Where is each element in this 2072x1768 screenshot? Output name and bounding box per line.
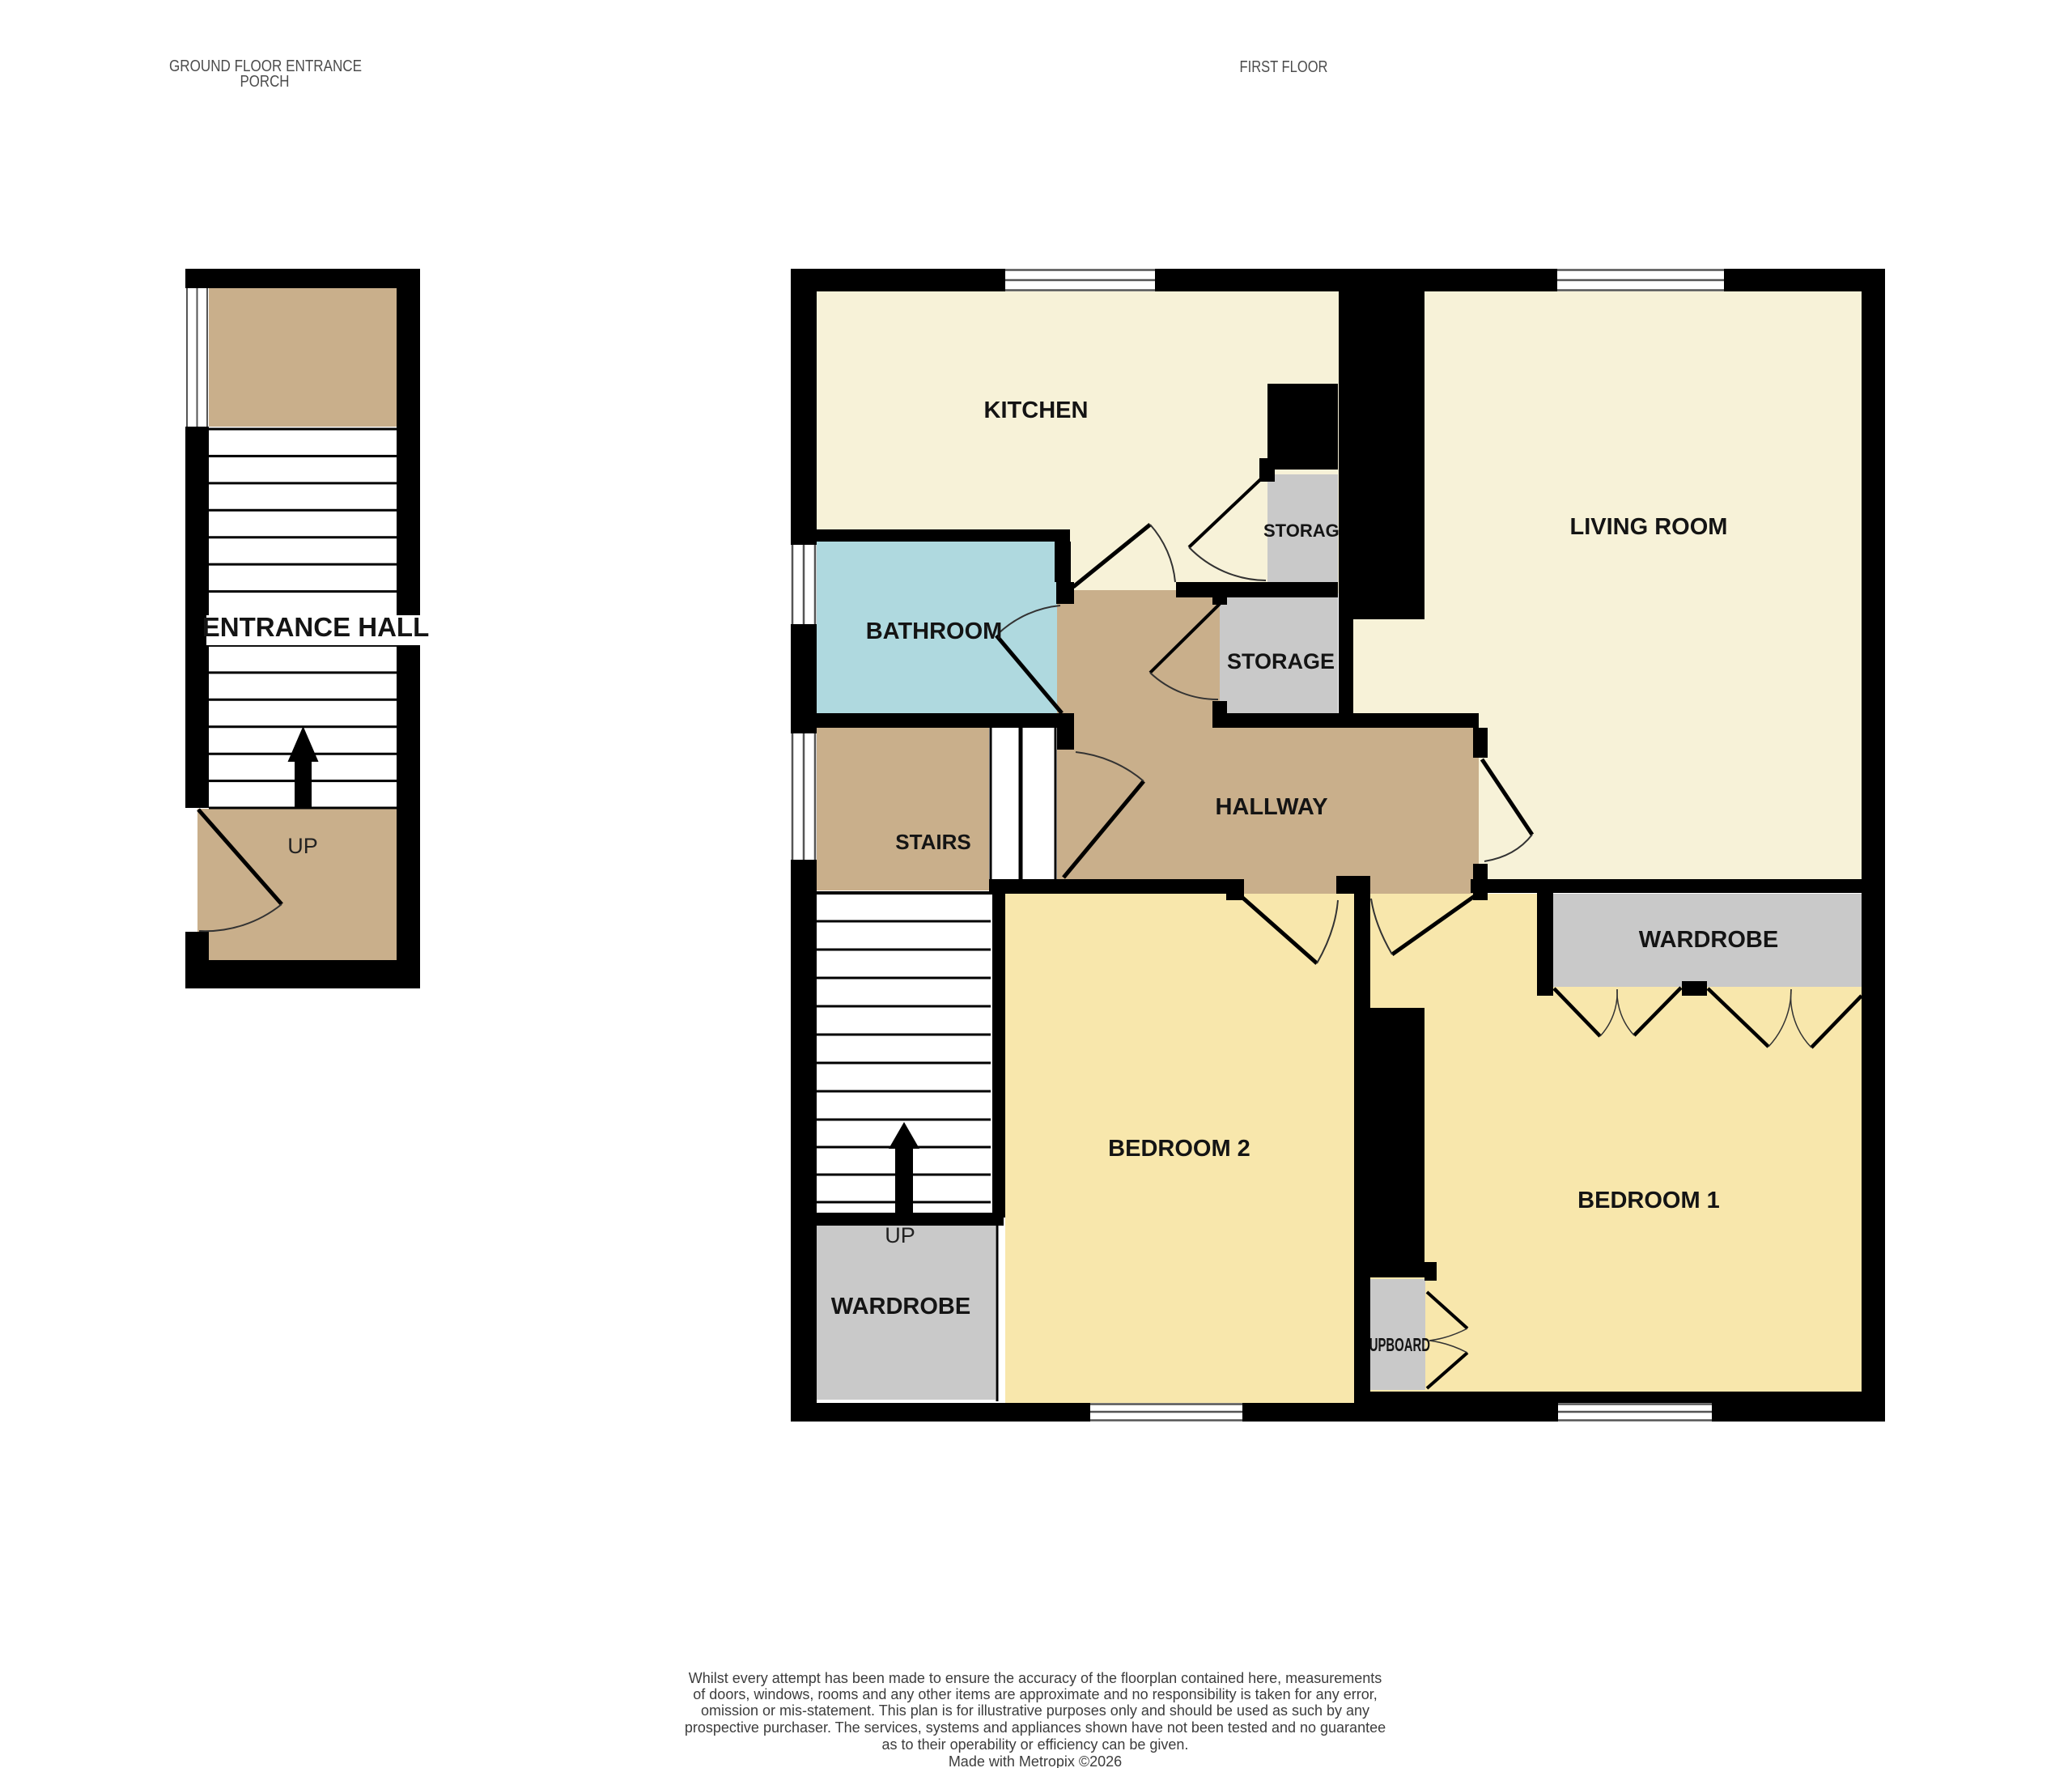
svg-text:WARDROBE: WARDROBE [831,1294,970,1320]
svg-text:STORAGE: STORAGE [1263,521,1351,541]
svg-text:WARDROBE: WARDROBE [1639,927,1778,953]
svg-text:STORAGE: STORAGE [1227,649,1335,674]
svg-text:Made with Metropix ©2026: Made with Metropix ©2026 [949,1753,1122,1768]
svg-text:UP: UP [287,834,318,858]
svg-text:CUPBOARD: CUPBOARD [1361,1334,1430,1355]
svg-text:KITCHEN: KITCHEN [984,397,1089,423]
svg-text:of doors, windows, rooms and a: of doors, windows, rooms and any other i… [693,1686,1377,1702]
svg-text:UP: UP [885,1223,915,1247]
svg-text:ENTRANCE HALL: ENTRANCE HALL [202,612,429,642]
svg-text:BATHROOM: BATHROOM [866,618,1003,644]
svg-text:omission or mis-statement. Thi: omission or mis-statement. This plan is … [701,1702,1369,1719]
svg-text:HALLWAY: HALLWAY [1215,794,1327,820]
svg-text:STAIRS: STAIRS [895,830,970,854]
svg-text:as to their operability or eff: as to their operability or efficiency ca… [882,1736,1189,1753]
svg-text:prospective purchaser. The ser: prospective purchaser. The services, sys… [685,1719,1386,1736]
svg-text:BEDROOM 2: BEDROOM 2 [1108,1136,1250,1162]
svg-text:LIVING ROOM: LIVING ROOM [1570,514,1728,540]
svg-text:FIRST FLOOR: FIRST FLOOR [1240,58,1328,76]
svg-text:Whilst every attempt has been: Whilst every attempt has been made to en… [689,1670,1382,1686]
svg-text:BEDROOM 1: BEDROOM 1 [1577,1188,1720,1213]
svg-text:PORCH: PORCH [240,73,290,91]
